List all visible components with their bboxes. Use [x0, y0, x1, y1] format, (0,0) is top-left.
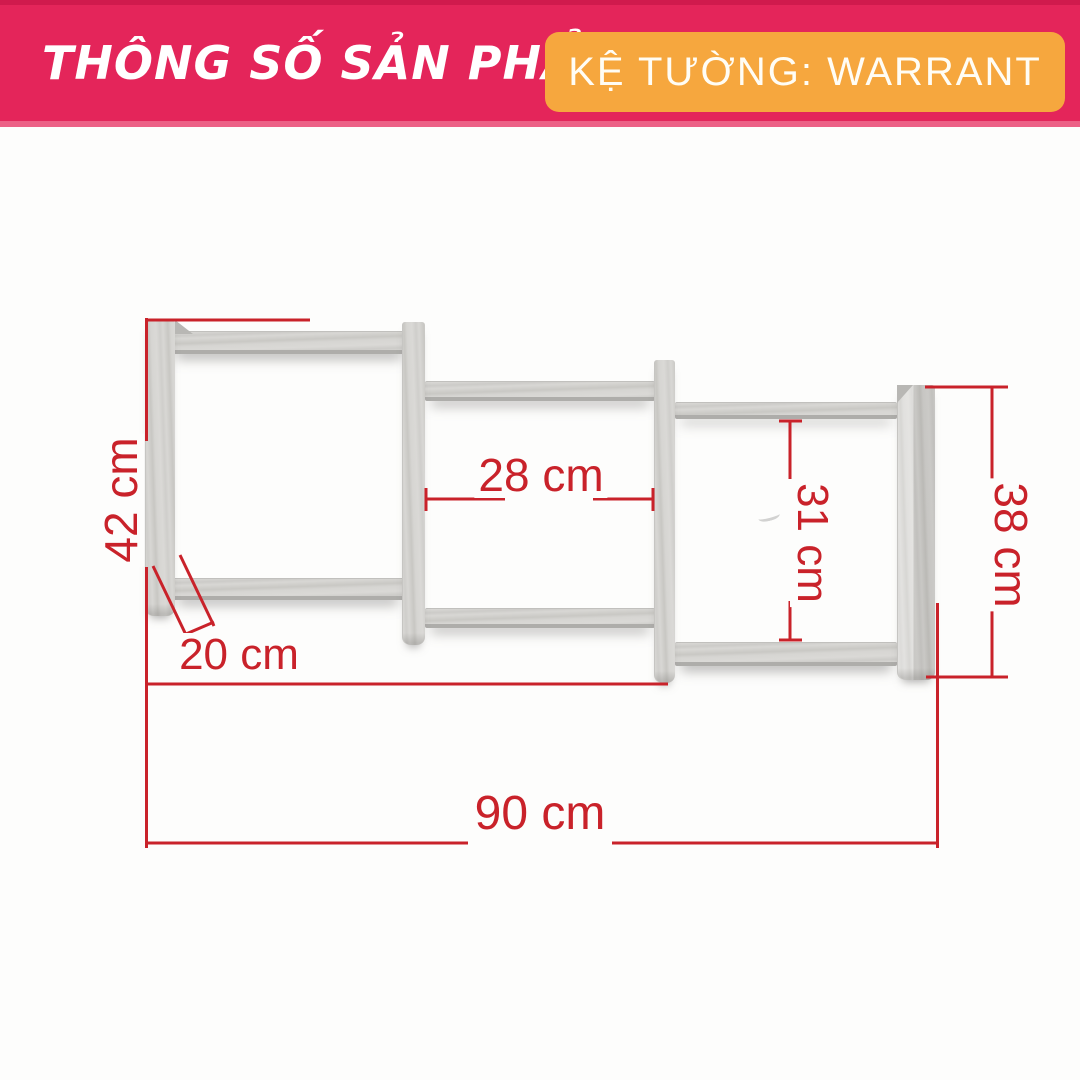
- dimension-lines: [0, 0, 1080, 1080]
- dimension-label-right-inner-height: 31 cm: [790, 479, 834, 607]
- dimension-label-right-height: 38 cm: [988, 478, 1034, 611]
- page: THÔNG SỐ SẢN PHẨM KỆ TƯỜNG: WARRANT: [0, 0, 1080, 1080]
- dimension-label-middle-inner-width: 28 cm: [474, 452, 607, 498]
- dimension-label-total-width: 90 cm: [471, 790, 610, 838]
- dimension-label-shelf-depth: 20 cm: [175, 633, 303, 677]
- dim-20-extension-back: [180, 555, 214, 626]
- dimension-label-left-height: 42 cm: [98, 433, 144, 566]
- dim-20-extension-front: [153, 566, 187, 637]
